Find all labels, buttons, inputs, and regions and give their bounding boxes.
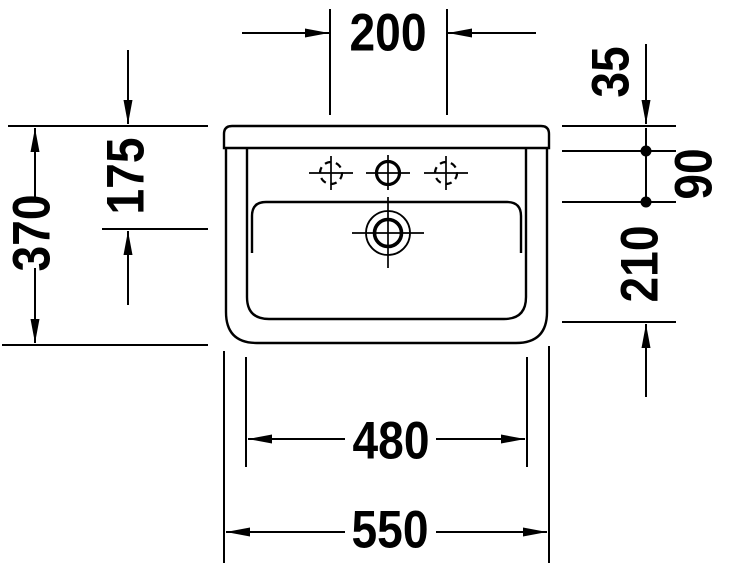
technical-drawing-canvas: 200 370 175 35 90 210 480 550	[0, 0, 730, 567]
rim-outline	[224, 126, 549, 148]
dim-label-bowl-width: 480	[347, 415, 435, 468]
faucet-hole-center	[366, 155, 410, 190]
dimension-extension-lines	[2, 9, 676, 563]
chain-dot-upper	[641, 146, 652, 157]
dim-label-overall-height: 370	[6, 189, 59, 277]
dim-label-rim-to-holes: 35	[585, 43, 638, 102]
dim-label-overall-width: 550	[346, 504, 434, 557]
dim-label-faucet-spacing: 200	[344, 7, 432, 60]
dim-label-rim-to-drain: 175	[100, 132, 153, 220]
inner-wall-outline	[247, 149, 526, 319]
dim-label-bowl-depth: 210	[614, 220, 667, 308]
washbasin-outline	[224, 126, 549, 343]
faucet-hole-right	[424, 156, 468, 190]
chain-dot-lower	[641, 197, 652, 208]
faucet-hole-left	[309, 156, 353, 190]
dim-label-holes-to-bowl: 90	[668, 145, 721, 204]
dimension-arrow-lines	[35, 33, 646, 532]
